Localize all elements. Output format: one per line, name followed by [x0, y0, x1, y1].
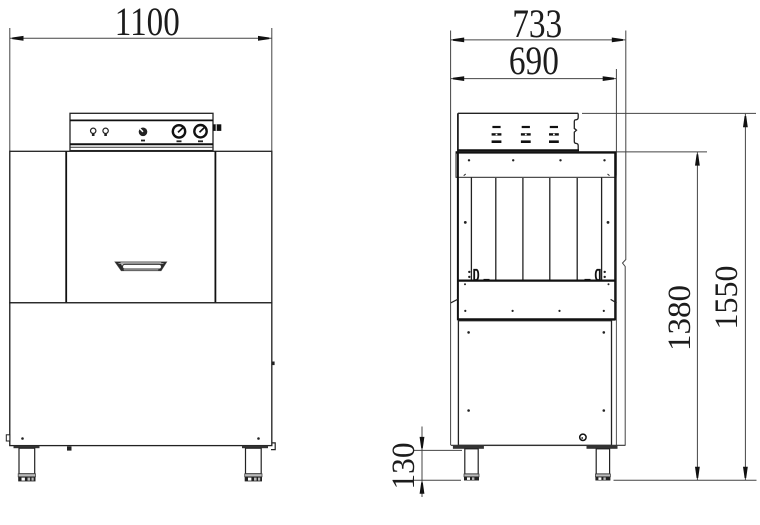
svg-text:130: 130 — [386, 443, 422, 490]
svg-text:690: 690 — [509, 38, 559, 83]
svg-text:1380: 1380 — [662, 285, 698, 351]
svg-text:1550: 1550 — [709, 266, 745, 330]
svg-text:1100: 1100 — [115, 0, 180, 44]
